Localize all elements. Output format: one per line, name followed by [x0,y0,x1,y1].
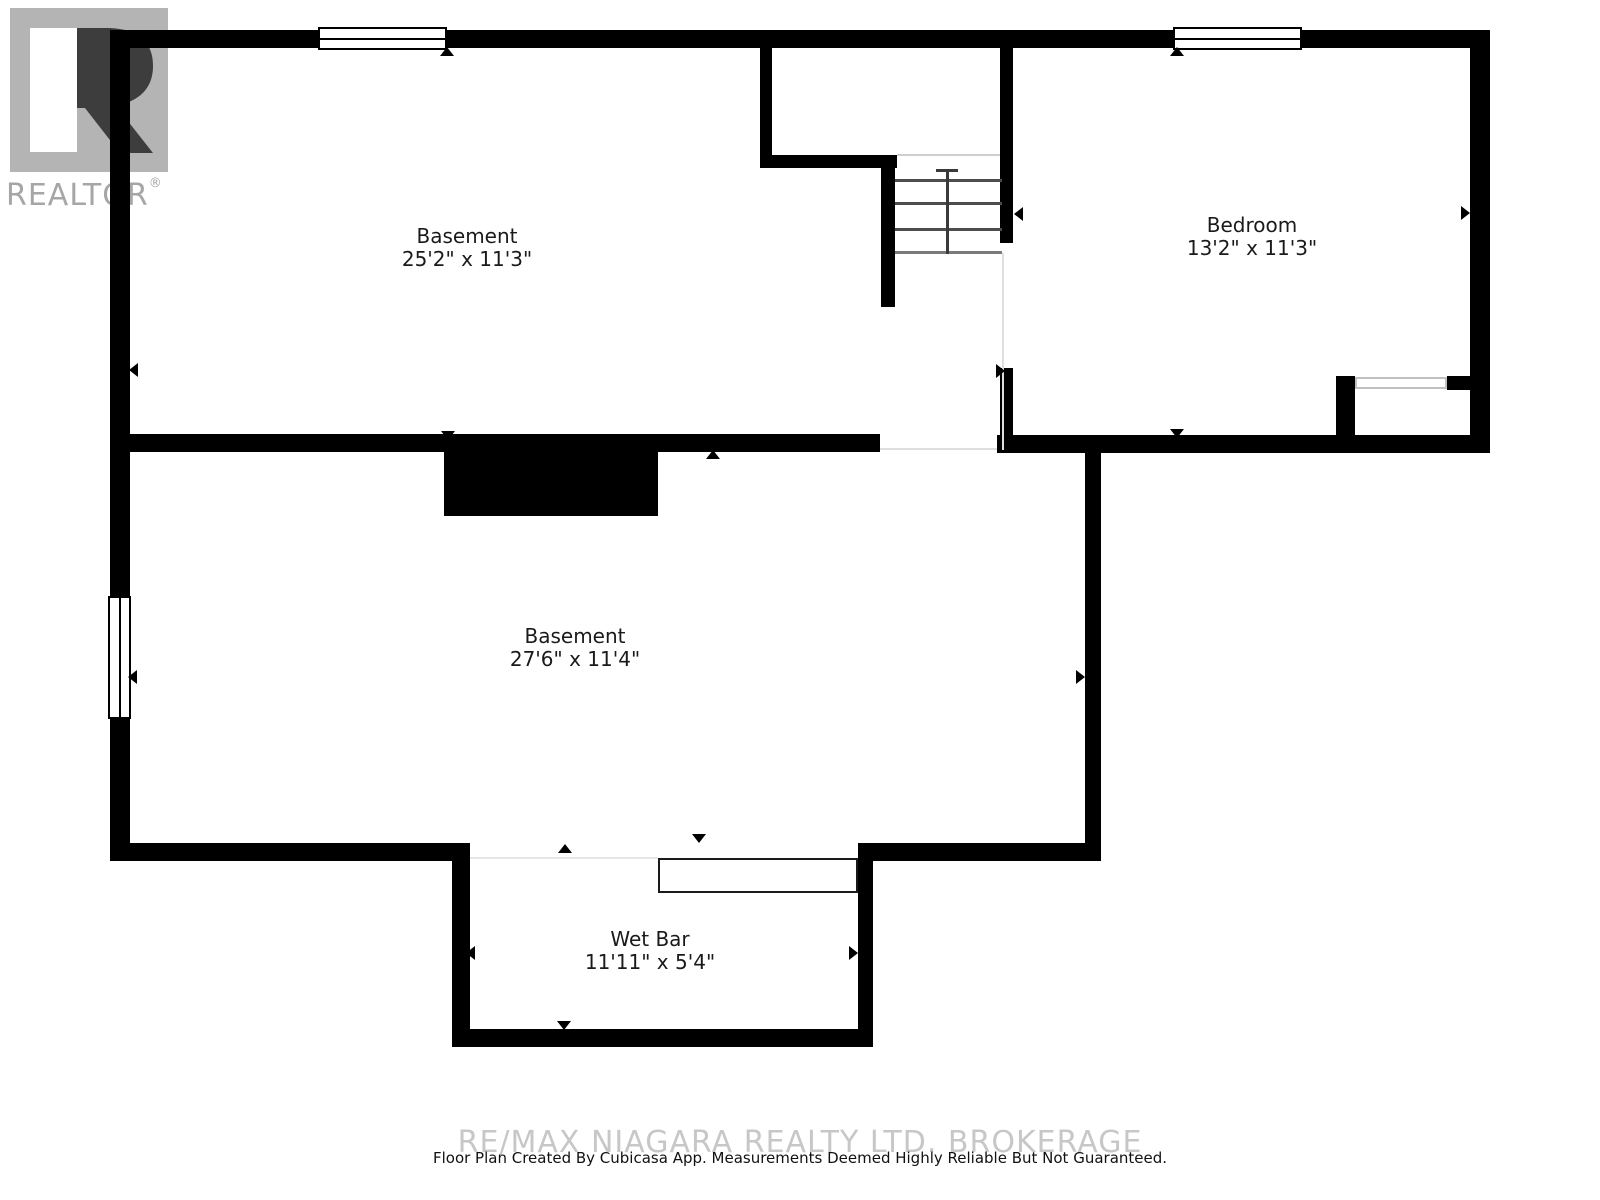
wall-basement-lower-right [1085,435,1101,861]
opening-arrow-icon [1170,47,1184,56]
room-name: Bedroom [1207,213,1297,237]
stair-top-boundary-line [897,154,1000,156]
opening-arrow-icon [996,364,1005,378]
room-dimensions: 13'2" x 11'3" [1187,237,1317,260]
room-dimensions: 25'2" x 11'3" [402,248,532,271]
wall-structural-block [444,434,658,516]
opening-arrow-icon [1170,429,1184,438]
room-dimensions: 27'6" x 11'4" [510,648,640,671]
opening-arrow-icon [706,450,720,459]
opening-arrow-icon [557,1021,571,1030]
opening-arrow-icon [441,431,455,440]
wall-bottom-left [112,843,470,861]
room-label-wet-bar: Wet Bar 11'11" x 5'4" [585,928,715,974]
room-dimensions: 11'11" x 5'4" [585,951,715,974]
room-label-basement-upper: Basement 25'2" x 11'3" [402,225,532,271]
floor-plan-canvas: REALTOR® Basement [0,0,1600,1200]
wall-closet-stub [1447,376,1471,390]
registered-mark: ® [149,176,162,191]
opening-arrow-icon [129,363,138,377]
opening-arrow-icon [466,946,475,960]
closet-door-opening [1355,377,1447,389]
corridor-boundary-vertical [1002,253,1004,450]
opening-arrow-icon [849,946,858,960]
wall-right-of-wetbar [858,843,1101,861]
opening-arrow-icon [1076,670,1085,684]
wall-bedroom-left-upper [1000,48,1013,243]
wall-bedroom-bottom [997,435,1490,453]
opening-arrow-icon [1014,207,1023,221]
room-label-basement-lower: Basement 27'6" x 11'4" [510,625,640,671]
wall-stair-top-vertical [760,48,772,168]
room-name: Wet Bar [610,927,689,951]
wall-right-bedroom [1470,30,1490,453]
wall-closet-vertical [1336,376,1355,437]
wet-bar-counter [658,858,858,893]
opening-arrow-icon [128,670,137,684]
stair-handrail-cap [936,169,958,172]
wall-wetbar-right [858,843,873,1047]
wall-stair-left [881,168,895,307]
opening-arrow-icon [692,834,706,843]
window-basement-left [108,596,131,719]
realtor-wordmark: REALTOR® [6,176,181,213]
stair-handrail [946,169,949,254]
opening-arrow-icon [1461,206,1470,220]
wetbar-boundary-line [470,857,658,859]
window-basement-top [318,27,447,50]
room-name: Basement [524,624,625,648]
window-bedroom-top [1173,27,1302,50]
disclaimer-text: Floor Plan Created By Cubicasa App. Meas… [433,1149,1167,1167]
room-name: Basement [416,224,517,248]
opening-arrow-icon [558,844,572,853]
wall-stair-top-horizontal [760,155,897,168]
wall-wetbar-left [452,843,470,1047]
opening-arrow-icon [440,47,454,56]
wall-wetbar-bottom [452,1029,873,1047]
corridor-boundary-horizontal [880,448,997,450]
room-label-bedroom: Bedroom 13'2" x 11'3" [1187,214,1317,260]
